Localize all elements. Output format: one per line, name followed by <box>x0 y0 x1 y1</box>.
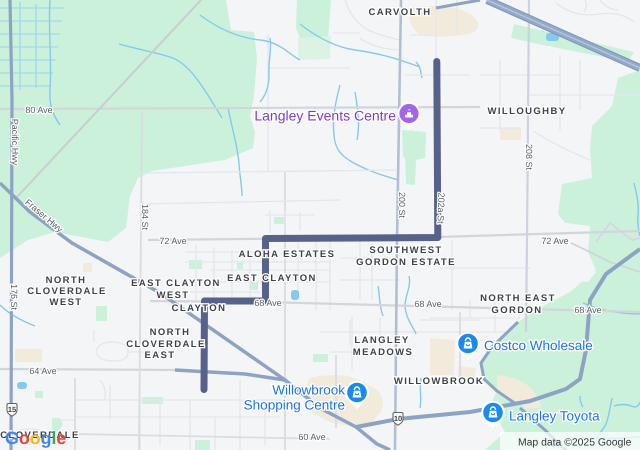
svg-text:Willowbrook: Willowbrook <box>272 383 345 398</box>
svg-text:NORTH EAST: NORTH EAST <box>480 293 556 304</box>
svg-text:64 Ave: 64 Ave <box>29 366 56 376</box>
svg-text:68 Ave: 68 Ave <box>254 298 281 308</box>
svg-text:EAST: EAST <box>145 350 176 361</box>
svg-text:LANGLEY: LANGLEY <box>354 335 409 346</box>
svg-text:NORTH: NORTH <box>150 327 191 338</box>
svg-text:Map data ©2025 Google: Map data ©2025 Google <box>518 438 632 449</box>
svg-text:CLAYTON: CLAYTON <box>172 303 227 314</box>
svg-text:ALOHA ESTATES: ALOHA ESTATES <box>239 249 336 260</box>
svg-text:208 St: 208 St <box>524 144 534 171</box>
svg-text:72 Ave: 72 Ave <box>159 236 186 246</box>
svg-text:80 Ave: 80 Ave <box>25 105 52 115</box>
svg-text:Shopping Centre: Shopping Centre <box>244 398 345 413</box>
svg-text:Costco Wholesale: Costco Wholesale <box>484 338 593 353</box>
svg-text:CLOVERDALE: CLOVERDALE <box>126 339 205 350</box>
svg-text:CLOVERDALE: CLOVERDALE <box>27 286 106 297</box>
svg-text:WILLOUGHBY: WILLOUGHBY <box>488 106 567 117</box>
svg-text:72 Ave: 72 Ave <box>541 236 568 246</box>
svg-text:EAST CLAYTON: EAST CLAYTON <box>131 278 221 289</box>
svg-text:10: 10 <box>394 414 402 423</box>
svg-text:184 St: 184 St <box>140 204 150 231</box>
svg-text:Pacific Hwy: Pacific Hwy <box>10 119 20 166</box>
svg-text:WEST: WEST <box>49 297 82 308</box>
svg-text:CARVOLTH: CARVOLTH <box>368 7 431 18</box>
svg-text:WEST: WEST <box>156 290 189 301</box>
svg-text:68 Ave: 68 Ave <box>414 299 441 309</box>
svg-text:Google: Google <box>5 428 66 448</box>
svg-text:NORTH: NORTH <box>46 275 87 286</box>
svg-text:Langley Toyota: Langley Toyota <box>509 409 600 424</box>
svg-text:MEADOWS: MEADOWS <box>353 347 413 358</box>
svg-text:SOUTHWEST: SOUTHWEST <box>369 245 442 256</box>
svg-text:202a St: 202a St <box>435 192 446 224</box>
svg-text:GORDON ESTATE: GORDON ESTATE <box>356 257 456 268</box>
svg-text:GORDON: GORDON <box>491 305 542 316</box>
svg-text:Langley Events Centre: Langley Events Centre <box>254 108 396 124</box>
svg-text:15: 15 <box>8 405 16 414</box>
svg-text:200 St: 200 St <box>397 192 407 219</box>
svg-text:60 Ave: 60 Ave <box>298 432 325 442</box>
svg-text:EAST CLAYTON: EAST CLAYTON <box>227 273 317 284</box>
svg-text:WILLOWBROOK: WILLOWBROOK <box>394 376 484 387</box>
svg-text:68 Ave: 68 Ave <box>574 305 601 315</box>
svg-text:176 St: 176 St <box>9 284 19 311</box>
